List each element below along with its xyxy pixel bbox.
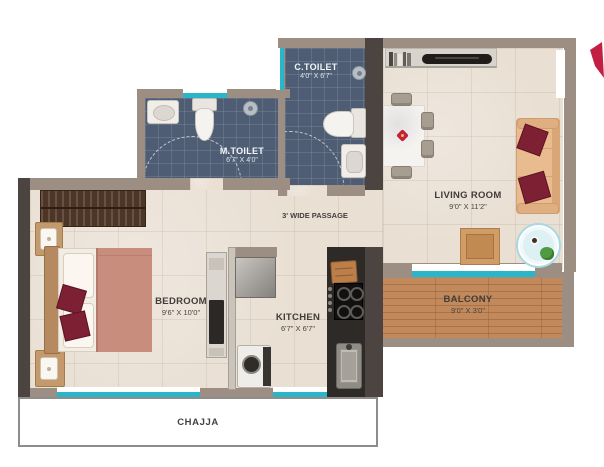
wall-balcony-bottom — [383, 338, 574, 347]
sink-faucet — [346, 344, 352, 350]
books — [389, 52, 393, 66]
wall-top — [278, 38, 576, 48]
coffee-table-top — [466, 234, 494, 259]
logo-fragment — [588, 42, 604, 80]
balcony-sliding-window — [412, 264, 535, 277]
wall-dark-kitchen-right — [365, 247, 383, 397]
floor-plan: CHAJJA C.TOILET 4'0" X 6'7" M.TOILET 6'7… — [0, 0, 604, 467]
wall-c-toilet-bottom-right — [327, 185, 365, 196]
sofa-armrest — [517, 203, 559, 214]
gas-stove — [334, 283, 363, 320]
m-toilet-shower-icon — [243, 101, 258, 116]
books — [403, 52, 406, 66]
wall-dark-toilet-living — [365, 38, 383, 190]
living-room-wall-niche — [556, 50, 565, 98]
wall-m-toilet-left — [137, 89, 145, 187]
stove-knob — [328, 308, 332, 312]
books — [407, 53, 411, 66]
balcony-window-glass — [412, 271, 535, 277]
passage-label: 3' WIDE PASSAGE — [260, 211, 370, 220]
bedroom-tv — [209, 300, 224, 344]
bed-duvet — [96, 248, 152, 352]
tv-sheen — [435, 57, 480, 59]
kitchen-window — [273, 387, 327, 397]
burner — [337, 287, 351, 301]
board-line — [335, 274, 353, 276]
burner — [337, 305, 351, 319]
m-toilet-window — [183, 88, 227, 98]
dining-chair — [421, 140, 434, 158]
chajja-strip: CHAJJA — [18, 397, 378, 447]
bedroom-window — [57, 387, 200, 397]
m-toilet-door-swing — [145, 136, 242, 178]
m-toilet-basin — [147, 100, 179, 124]
c-toilet-window-glass — [280, 48, 284, 90]
lamp-dot — [47, 367, 51, 371]
washing-machine-door — [242, 355, 261, 374]
c-toilet-wc-bowl — [323, 111, 354, 137]
sofa-backrest — [552, 120, 560, 212]
dresser-drawer — [209, 348, 224, 356]
dining-chair — [391, 93, 412, 106]
living-room-tv — [422, 54, 492, 64]
burner — [350, 287, 364, 301]
books — [398, 54, 402, 66]
wall-bedroom-top — [18, 178, 190, 190]
basin-bowl — [346, 151, 363, 173]
wardrobe-divider — [41, 207, 145, 209]
stove-knob — [328, 294, 332, 298]
door-gap-m-toilet — [190, 178, 223, 190]
wall-right — [564, 38, 576, 272]
basin-bowl — [153, 105, 175, 121]
coffee-cup — [530, 236, 539, 245]
dresser-drawer — [209, 258, 224, 270]
floor-balcony — [383, 278, 562, 338]
burner — [350, 305, 364, 319]
potted-plant — [540, 247, 554, 260]
door-gap-c-toilet — [287, 185, 327, 196]
shower-dot — [248, 106, 253, 111]
chajja-label: CHAJJA — [177, 417, 219, 428]
dining-chair — [421, 112, 434, 130]
wall-balcony-right — [562, 272, 574, 347]
board-line — [335, 267, 353, 269]
table-lamp-bottom — [40, 357, 58, 380]
washing-machine-panel — [263, 347, 271, 386]
lamp-dot — [47, 237, 51, 241]
fridge — [235, 257, 276, 298]
c-toilet-basin — [341, 144, 366, 178]
books — [394, 53, 397, 66]
wall-c-toilet-bottom-left — [278, 185, 287, 196]
c-toilet-window — [276, 48, 284, 90]
sink-basin — [342, 352, 356, 380]
shower-dot — [357, 71, 362, 76]
wall-bedroom-left — [18, 178, 30, 397]
cutting-board — [330, 260, 357, 284]
stove-knob — [328, 287, 332, 291]
c-toilet-door-swing — [285, 131, 344, 185]
round-glass-table — [518, 225, 559, 266]
c-toilet-shower-icon — [352, 66, 366, 80]
duvet-fold — [98, 255, 152, 256]
stove-knob — [328, 301, 332, 305]
dining-chair — [391, 166, 412, 179]
flower-center — [401, 134, 404, 137]
logo-red-shape — [590, 42, 604, 78]
